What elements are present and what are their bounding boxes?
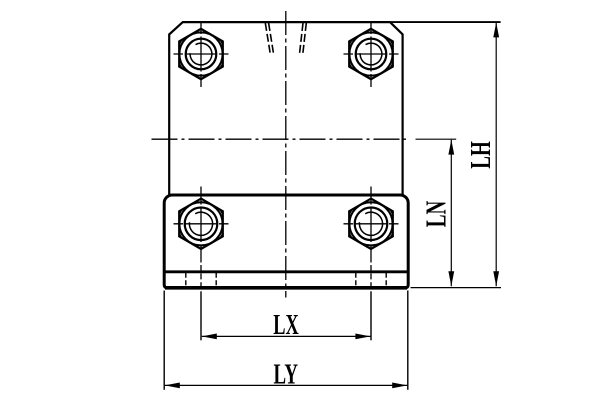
svg-text:LY: LY [274,358,299,390]
svg-text:LX: LX [273,309,299,341]
svg-text:LN: LN [421,201,453,228]
svg-text:LH: LH [465,141,497,169]
